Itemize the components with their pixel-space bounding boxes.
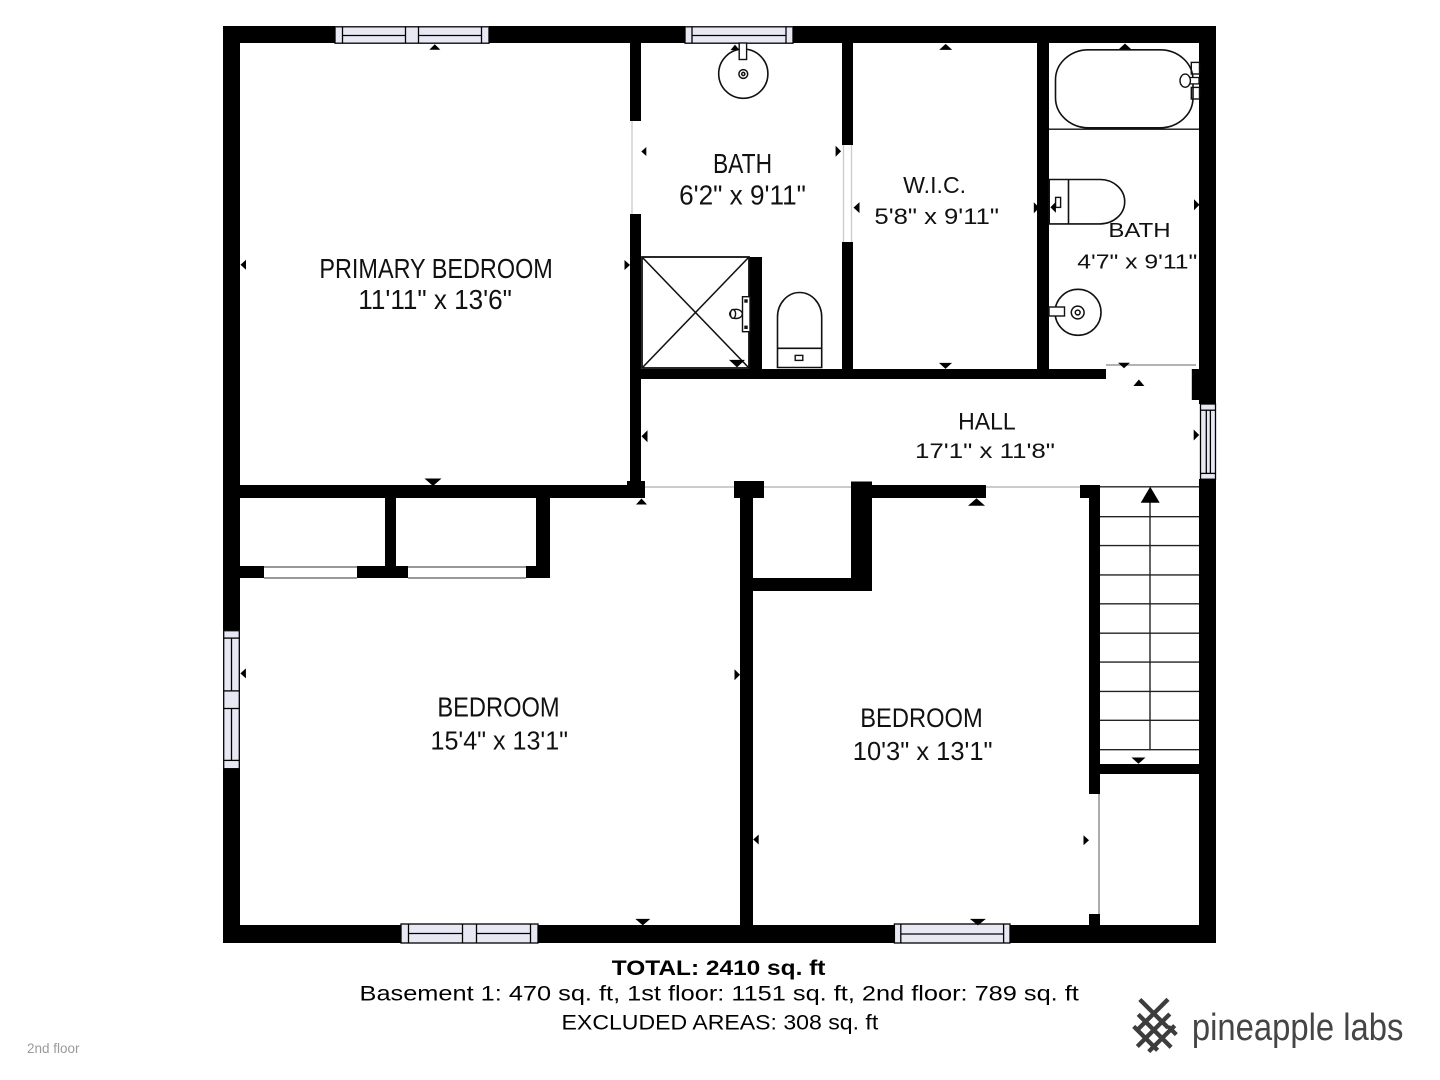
svg-text:BEDROOM: BEDROOM: [437, 692, 559, 723]
svg-text:5'8" x 9'11": 5'8" x 9'11": [874, 204, 999, 229]
svg-text:HALL: HALL: [958, 408, 1016, 435]
svg-text:6'2" x 9'11": 6'2" x 9'11": [679, 180, 806, 211]
svg-text:BEDROOM: BEDROOM: [860, 703, 983, 733]
svg-text:W.I.C.: W.I.C.: [903, 172, 966, 198]
svg-text:PRIMARY BEDROOM: PRIMARY BEDROOM: [319, 253, 552, 284]
svg-text:10'3" x 13'1": 10'3" x 13'1": [853, 736, 993, 766]
svg-text:pineapple labs: pineapple labs: [1192, 1007, 1404, 1049]
svg-text:BATH: BATH: [1108, 220, 1170, 242]
svg-text:17'1" x 11'8": 17'1" x 11'8": [915, 439, 1055, 463]
svg-text:11'11" x 13'6": 11'11" x 13'6": [358, 284, 512, 315]
svg-text:Basement 1: 470 sq. ft, 1st fl: Basement 1: 470 sq. ft, 1st floor: 1151 …: [360, 981, 1079, 1005]
svg-text:4'7" x 9'11": 4'7" x 9'11": [1077, 251, 1197, 273]
svg-text:15'4" x 13'1": 15'4" x 13'1": [431, 726, 569, 756]
svg-text:2nd floor: 2nd floor: [27, 1041, 80, 1056]
svg-text:TOTAL: 2410 sq. ft: TOTAL: 2410 sq. ft: [612, 957, 826, 980]
svg-text:EXCLUDED AREAS: 308 sq. ft: EXCLUDED AREAS: 308 sq. ft: [562, 1010, 879, 1034]
svg-text:BATH: BATH: [713, 148, 772, 179]
